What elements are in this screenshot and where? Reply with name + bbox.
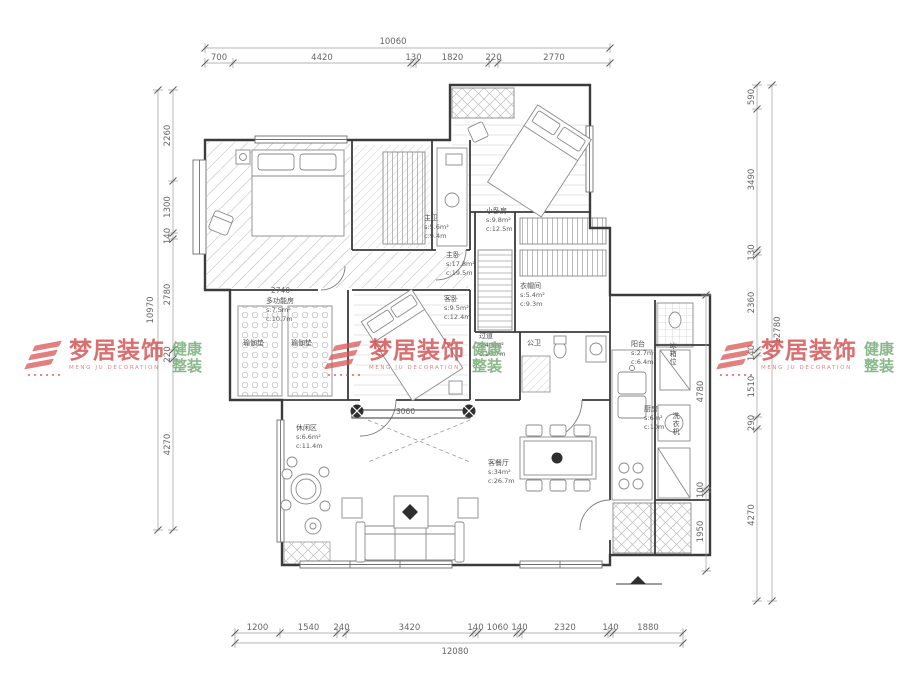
dimension-value: 240 <box>333 623 349 633</box>
dimension-total: 10060 <box>379 37 406 47</box>
dimension-value: 100 <box>696 482 706 498</box>
side-table <box>458 498 478 518</box>
dimension-value: 4270 <box>747 504 757 526</box>
dimension-value: 2260 <box>163 125 173 147</box>
floor-plan-page: 1006070044201301820220277012001540240342… <box>0 0 899 683</box>
dimension-value: 220 <box>163 346 173 362</box>
ceiling-fan-symbol <box>463 405 476 418</box>
dimension-value: 1820 <box>442 53 464 63</box>
dimension-value: 2770 <box>543 53 565 63</box>
dimension-total: 10970 <box>146 296 156 323</box>
dimension-value: 290 <box>747 415 757 431</box>
dimension-total: 12780 <box>773 316 783 343</box>
leisure-table-set <box>281 457 330 534</box>
dimension-value: 4270 <box>163 434 173 456</box>
vanity-counter <box>437 148 467 246</box>
dimension-value: 140 <box>467 623 483 633</box>
dimension-total: 12080 <box>441 647 468 657</box>
public-bath-fixtures <box>554 336 606 362</box>
dimension-value: 2360 <box>747 292 757 314</box>
dimension-value: 1060 <box>487 623 509 633</box>
dimension-value: 140 <box>511 623 527 633</box>
dimension-value: 4420 <box>311 53 333 63</box>
stool <box>449 381 462 394</box>
dimension-value: 2320 <box>554 623 576 633</box>
dimension-value: 140 <box>163 228 173 244</box>
dimension-value: 700 <box>211 53 227 63</box>
section-mark <box>616 576 662 584</box>
master-bed <box>236 150 344 236</box>
dimension-value: 1200 <box>247 623 269 633</box>
door-swing-dashes <box>368 420 470 462</box>
dimension-value: 2780 <box>163 284 173 306</box>
dimension-value: 140 <box>747 345 757 361</box>
dimension-value: 1540 <box>298 623 320 633</box>
dimension-value: 1880 <box>637 623 659 633</box>
dimension-value: 130 <box>405 53 421 63</box>
dimension-value: 3490 <box>747 169 757 191</box>
chandelier-symbol <box>552 453 563 464</box>
ceiling-fan-symbol <box>351 405 364 418</box>
dimension-value: 1300 <box>163 196 173 218</box>
dimension-value: 1950 <box>696 521 706 543</box>
dimension-value: 1510 <box>747 376 757 398</box>
side-table <box>342 498 362 518</box>
dimension-value: 130 <box>747 244 757 260</box>
dimension-value: 220 <box>485 53 501 63</box>
dimension-value: 3420 <box>399 623 421 633</box>
dimension-value: 4780 <box>696 381 706 403</box>
dimension-value: 590 <box>747 89 757 105</box>
floor-plan-drawing: 1006070044201301820220277012001540240342… <box>0 0 899 683</box>
dimension-value: 140 <box>602 623 618 633</box>
